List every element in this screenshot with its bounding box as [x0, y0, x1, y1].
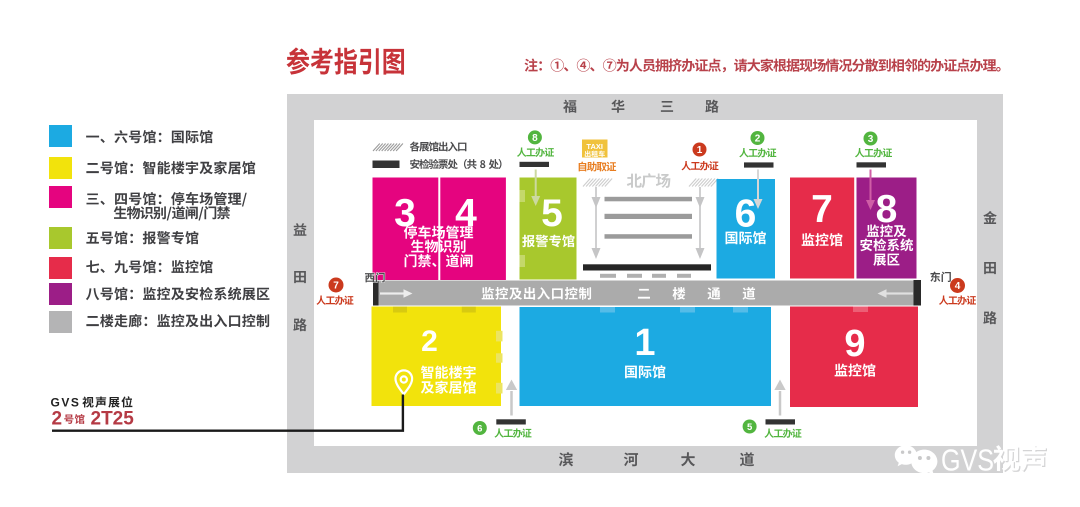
svg-text:4: 4 [955, 281, 961, 292]
svg-text:7: 7 [811, 188, 833, 231]
svg-text:2: 2 [755, 134, 761, 145]
svg-text:8: 8 [876, 188, 898, 231]
svg-text:1: 1 [634, 322, 655, 364]
svg-text:5: 5 [747, 422, 753, 433]
svg-text:6: 6 [735, 193, 757, 236]
svg-text:2T25: 2T25 [91, 409, 135, 430]
svg-text:8: 8 [532, 133, 538, 144]
svg-text:2: 2 [52, 409, 63, 430]
svg-text:6: 6 [477, 424, 482, 435]
svg-text:3: 3 [868, 134, 874, 145]
svg-text:GVS: GVS [941, 443, 994, 478]
svg-text:7: 7 [333, 281, 339, 292]
svg-text:GVS: GVS [51, 396, 81, 410]
svg-text:9: 9 [844, 323, 865, 365]
svg-text:2: 2 [421, 325, 438, 358]
svg-text:1: 1 [697, 145, 703, 156]
svg-text:5: 5 [541, 192, 563, 235]
svg-text:TAXI: TAXI [586, 142, 603, 151]
svg-text:3: 3 [394, 192, 416, 235]
